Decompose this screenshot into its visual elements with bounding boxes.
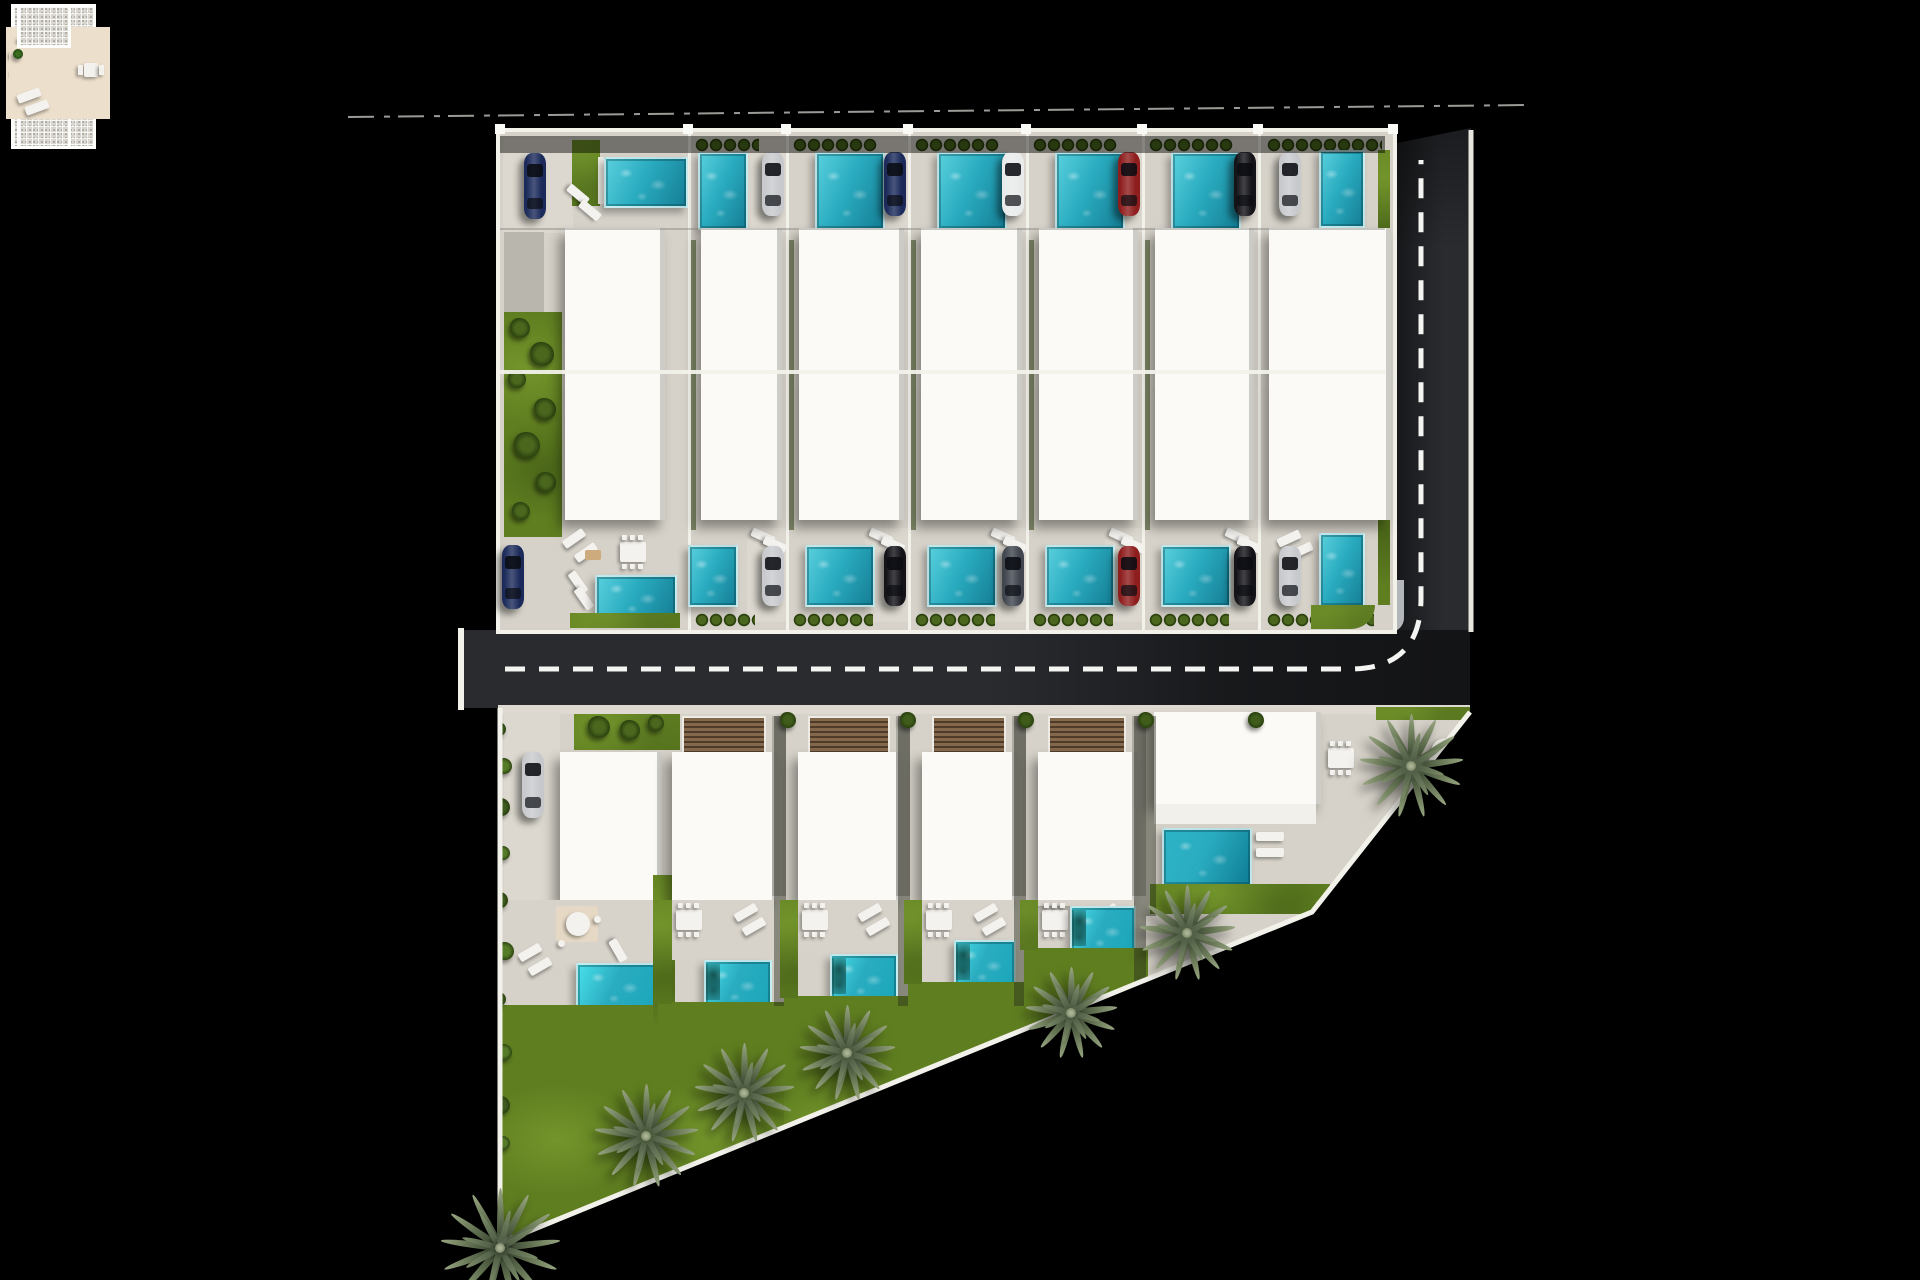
garden-strip — [1029, 240, 1034, 530]
palm-crown-center — [739, 1088, 749, 1098]
chair — [928, 903, 933, 908]
wall-post — [781, 124, 791, 134]
hedge-row — [1033, 612, 1113, 627]
parked-car — [1279, 152, 1301, 216]
dining-table-large — [1328, 748, 1354, 768]
patio — [796, 900, 898, 954]
chair — [694, 903, 699, 908]
villa-house — [1155, 374, 1254, 520]
villa-house — [565, 374, 665, 520]
chair — [638, 535, 643, 540]
chair — [1044, 903, 1049, 908]
shrub — [530, 342, 554, 366]
car-rear-glass — [765, 585, 781, 596]
plot-n7 — [1258, 132, 1396, 630]
shrub — [510, 318, 530, 338]
shrub — [512, 502, 530, 520]
shrub — [496, 758, 512, 774]
swimming-pool — [1161, 545, 1231, 607]
dining-table-large — [676, 910, 702, 930]
car-windshield — [525, 763, 541, 776]
swimming-pool — [1055, 152, 1125, 230]
shrub — [780, 712, 796, 728]
shrub — [492, 992, 506, 1006]
shrub — [534, 398, 556, 420]
site-plan-render — [0, 0, 1920, 1280]
chair — [1346, 770, 1351, 775]
pergola-brown — [1048, 716, 1126, 756]
parked-car — [1118, 152, 1140, 216]
chair — [804, 932, 809, 937]
wall-line — [348, 105, 1530, 117]
chair — [1346, 741, 1351, 746]
garden-strip — [691, 240, 696, 530]
swimming-pool — [1319, 533, 1365, 607]
road-horizontal — [462, 630, 1470, 708]
chair — [944, 932, 949, 937]
shrub — [492, 1096, 510, 1114]
car-windshield — [1005, 557, 1021, 570]
sun-lounger — [1276, 529, 1302, 547]
lawn-strip — [654, 900, 672, 1004]
shrub — [492, 722, 506, 736]
chair — [113, 12, 118, 17]
palm-crown-center — [842, 1048, 852, 1058]
swimming-pool — [1045, 545, 1115, 607]
parked-car — [884, 546, 906, 606]
roof-pergola — [17, 4, 71, 48]
chair — [812, 932, 817, 937]
chair — [99, 70, 104, 75]
swimming-pool — [698, 152, 748, 230]
side-garden — [504, 312, 562, 537]
chair — [1052, 932, 1057, 937]
chair — [630, 535, 635, 540]
shrub — [496, 1044, 512, 1060]
swimming-pool — [1319, 150, 1365, 228]
car-windshield — [1005, 163, 1021, 176]
shrub — [492, 892, 508, 908]
car-windshield — [765, 163, 781, 176]
chair — [804, 903, 809, 908]
dining-table-large — [802, 910, 828, 930]
villa-house — [1039, 228, 1138, 374]
sun-lounger — [741, 917, 766, 937]
palm-tree — [1139, 885, 1235, 981]
wall-post — [1388, 124, 1398, 134]
sun-lounger — [865, 917, 890, 937]
car-rear-glass — [525, 797, 541, 808]
car-windshield — [887, 163, 903, 176]
patio-tint-top — [500, 228, 1385, 230]
sun-lounger — [573, 586, 594, 611]
car-rear-glass — [1237, 585, 1253, 596]
palm-tree — [1025, 967, 1117, 1059]
pool-plants — [956, 944, 970, 980]
shrub — [620, 720, 640, 740]
villa-house — [1039, 374, 1138, 520]
car-rear-glass — [887, 585, 903, 596]
garden-bench — [585, 550, 601, 560]
parked-car — [1118, 546, 1140, 606]
car-rear-glass — [1005, 585, 1021, 596]
parked-car — [522, 752, 544, 818]
hedge-row — [1149, 612, 1229, 627]
chair — [1330, 741, 1335, 746]
parked-car — [884, 152, 906, 216]
car-windshield — [1282, 163, 1298, 176]
parked-car — [762, 546, 784, 606]
sidewalk-tree-shadow — [1132, 716, 1146, 896]
villa-house — [1269, 228, 1391, 374]
sun-lounger — [1256, 848, 1284, 857]
palm-crown-center — [641, 1131, 651, 1141]
shrub — [1018, 712, 1034, 728]
wall-post — [1021, 124, 1031, 134]
side-path — [504, 232, 544, 312]
palm-crown-center — [1066, 1008, 1076, 1018]
dining-table-large — [926, 910, 952, 930]
car-rear-glass — [1121, 585, 1137, 596]
villa-house — [1269, 374, 1391, 520]
palm-crown-center — [495, 1243, 505, 1253]
chair — [820, 903, 825, 908]
plot-n4 — [908, 132, 1029, 630]
chair — [694, 932, 699, 937]
swimming-pool — [937, 152, 1007, 230]
car-windshield — [1282, 557, 1298, 570]
car-windshield — [1121, 163, 1137, 176]
car-windshield — [1121, 557, 1137, 570]
round-table — [566, 912, 590, 936]
palm-tree — [1359, 714, 1463, 818]
hedge-row — [793, 612, 873, 627]
swimming-pool — [927, 545, 997, 607]
chair — [936, 903, 941, 908]
car-windshield — [765, 557, 781, 570]
wall-shadow-band — [500, 136, 1385, 153]
stool — [558, 940, 565, 947]
swimming-pool — [1162, 828, 1252, 886]
shrub — [496, 1136, 510, 1150]
chair — [936, 932, 941, 937]
chair — [622, 535, 627, 540]
dining-table — [96, 10, 112, 26]
villa-house — [921, 228, 1022, 374]
potted-plant — [13, 49, 23, 59]
roof-terrace — [9, 45, 110, 119]
shrub — [1138, 712, 1154, 728]
villa-s4 — [910, 705, 1026, 1245]
palm-crown-center — [1182, 928, 1192, 938]
wall-post — [1253, 124, 1263, 134]
villa-house — [672, 752, 777, 900]
shrub — [1248, 712, 1264, 728]
wall-post — [683, 124, 693, 134]
villa-house — [701, 374, 782, 520]
wall-post — [495, 124, 505, 134]
plot-n2 — [688, 132, 789, 630]
swimming-pool — [688, 545, 738, 607]
villa-house — [1154, 712, 1321, 804]
palm-tree — [440, 1188, 560, 1280]
chair — [820, 932, 825, 937]
chair — [1044, 932, 1049, 937]
car-windshield — [1237, 163, 1253, 176]
swimming-pool — [576, 963, 660, 1009]
shrub — [514, 432, 540, 458]
swimming-pool — [805, 545, 875, 607]
swimming-pool — [815, 152, 885, 230]
villa-house — [798, 752, 901, 900]
palm-tree — [594, 1084, 698, 1188]
car-rear-glass — [765, 195, 781, 206]
chair — [1052, 903, 1057, 908]
garden-strip — [789, 240, 794, 530]
car-windshield — [505, 556, 521, 569]
villa-house — [921, 374, 1022, 520]
wall-post — [1137, 124, 1147, 134]
garden-strip — [911, 240, 916, 530]
parked-car — [1234, 546, 1256, 606]
chair — [630, 564, 635, 569]
sun-lounger — [981, 917, 1006, 937]
chair — [78, 70, 83, 75]
car-rear-glass — [1282, 195, 1298, 206]
sun-lounger — [1256, 832, 1284, 841]
villa-house — [565, 228, 665, 374]
parked-car — [1279, 546, 1301, 606]
potted-plant — [138, 60, 152, 74]
dining-table-large — [1042, 910, 1068, 930]
road-vertical — [1393, 128, 1471, 630]
swimming-pool — [1171, 152, 1241, 230]
shrub — [588, 716, 610, 738]
palm-crown-center — [1406, 761, 1416, 771]
pool-plants — [706, 964, 720, 1000]
car-rear-glass — [887, 195, 903, 206]
divider-wall — [500, 370, 1385, 374]
sun-lounger — [562, 528, 587, 549]
chair — [686, 903, 691, 908]
dining-table-large — [620, 542, 646, 562]
swimming-pool — [604, 157, 688, 208]
patio — [670, 900, 774, 960]
wall-post — [903, 124, 913, 134]
stool — [594, 916, 601, 923]
parked-car — [502, 545, 524, 609]
chair — [1060, 903, 1065, 908]
chair — [678, 903, 683, 908]
lawn-strip — [780, 900, 798, 998]
car-rear-glass — [1237, 195, 1253, 206]
villa-house — [799, 228, 904, 374]
car-rear-glass — [505, 588, 521, 599]
car-rear-glass — [1005, 195, 1021, 206]
sun-lounger — [24, 99, 50, 116]
villa-house — [701, 228, 782, 374]
villa-house — [1155, 228, 1254, 374]
villa-house — [922, 752, 1017, 900]
shrub — [492, 798, 510, 816]
pergola-brown — [682, 716, 766, 756]
chair — [928, 932, 933, 937]
palm-tree — [694, 1043, 794, 1143]
lawn-strip — [904, 900, 922, 984]
car-windshield — [527, 164, 543, 177]
chair — [113, 19, 118, 24]
plot-n3 — [786, 132, 911, 630]
chair — [686, 932, 691, 937]
lawn-strip — [570, 613, 680, 628]
chair — [1330, 770, 1335, 775]
plot-n5 — [1026, 132, 1145, 630]
sidewalk-tree-shadow — [1012, 716, 1026, 896]
plot-n1 — [500, 132, 688, 630]
car-windshield — [887, 557, 903, 570]
terrace-band — [1154, 804, 1316, 824]
car-rear-glass — [1282, 585, 1298, 596]
chair — [812, 903, 817, 908]
hedge-row — [695, 612, 755, 627]
sidewalk-tree-shadow — [896, 716, 910, 896]
villa-house — [799, 374, 904, 520]
garden-strip — [1145, 240, 1150, 530]
parked-car — [762, 152, 784, 216]
parked-car — [1234, 152, 1256, 216]
shrub — [496, 942, 514, 960]
hedge-row — [915, 612, 995, 627]
chair — [678, 932, 683, 937]
pergola-brown — [932, 716, 1006, 756]
villa-house — [560, 752, 662, 900]
car-windshield — [1237, 557, 1253, 570]
north-block — [496, 128, 1397, 634]
villa-s3 — [786, 705, 910, 1245]
car-rear-glass — [527, 198, 543, 209]
lawn — [908, 982, 1028, 1280]
lawn-strip — [1020, 900, 1038, 950]
pool-plants — [1072, 910, 1086, 946]
chair — [1338, 741, 1343, 746]
villa-house — [1038, 752, 1137, 900]
patio — [920, 900, 1014, 940]
shrub — [496, 846, 510, 860]
plot-n6 — [1142, 132, 1261, 630]
chair — [638, 564, 643, 569]
sidewalk-tree-shadow — [772, 716, 786, 896]
chair — [622, 564, 627, 569]
parked-car — [1002, 152, 1024, 216]
chair — [1338, 770, 1343, 775]
parked-car — [524, 153, 546, 219]
shrub — [900, 712, 916, 728]
chair — [1060, 932, 1065, 937]
dining-table — [84, 63, 98, 77]
palm-tree — [799, 1005, 895, 1101]
pergola-brown — [808, 716, 890, 756]
parked-car — [1002, 546, 1024, 606]
edge-green — [1315, 860, 1483, 913]
car-rear-glass — [1121, 195, 1137, 206]
shrub — [536, 472, 556, 492]
chair — [944, 903, 949, 908]
pool-plants — [832, 958, 846, 994]
